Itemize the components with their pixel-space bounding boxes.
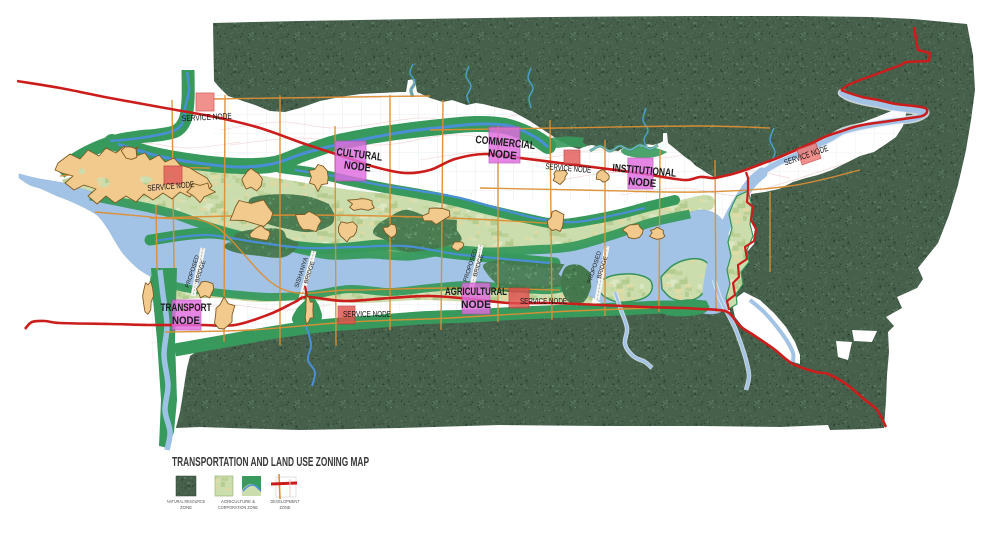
svg-text:AGRICULTURE &: AGRICULTURE & (221, 499, 255, 504)
svg-text:NODE: NODE (461, 299, 491, 311)
svg-text:NATURAL RESOURCE: NATURAL RESOURCE (167, 499, 205, 504)
svg-text:TRANSPORTATION AND LAND USE ZO: TRANSPORTATION AND LAND USE ZONING MAP (172, 455, 369, 469)
svg-text:SERVICE NODE: SERVICE NODE (343, 309, 391, 319)
svg-text:DEVELOPMENT: DEVELOPMENT (271, 499, 300, 504)
svg-text:NODE: NODE (172, 315, 200, 327)
svg-text:SERVICE NODE: SERVICE NODE (520, 296, 567, 306)
svg-text:NODE: NODE (628, 176, 657, 190)
svg-text:CORPORATION ZONE: CORPORATION ZONE (218, 505, 258, 510)
svg-text:ZONE: ZONE (180, 505, 192, 510)
svg-text:ZONE: ZONE (280, 505, 291, 510)
svg-text:TRANSPORT: TRANSPORT (161, 302, 212, 314)
svg-text:AGRICULTURAL: AGRICULTURAL (445, 286, 507, 298)
